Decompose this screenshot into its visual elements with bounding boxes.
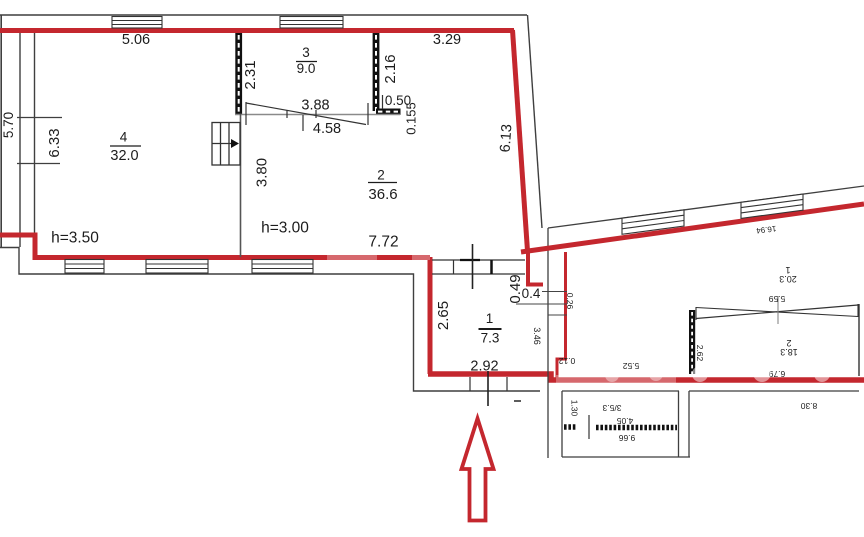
- svg-text:16.94: 16.94: [755, 224, 777, 235]
- svg-text:2: 2: [786, 338, 791, 348]
- svg-text:0.12: 0.12: [558, 356, 575, 366]
- svg-text:8.30: 8.30: [800, 401, 817, 411]
- svg-text:5.70: 5.70: [1, 112, 16, 138]
- svg-text:32.0: 32.0: [110, 148, 138, 164]
- svg-text:36.6: 36.6: [368, 186, 397, 203]
- svg-text:6.79: 6.79: [768, 369, 785, 379]
- svg-text:18.3: 18.3: [780, 347, 798, 357]
- svg-text:6.33: 6.33: [46, 128, 63, 157]
- svg-text:1: 1: [486, 311, 494, 326]
- svg-text:7.72: 7.72: [368, 234, 398, 251]
- svg-text:2.65: 2.65: [435, 301, 452, 330]
- svg-text:5.06: 5.06: [122, 32, 150, 48]
- svg-text:2.16: 2.16: [382, 54, 399, 83]
- svg-text:9.0: 9.0: [297, 61, 316, 76]
- svg-text:7.3: 7.3: [481, 331, 500, 346]
- svg-text:5.59: 5.59: [768, 294, 785, 304]
- svg-text:1.30: 1.30: [570, 400, 580, 417]
- svg-text:0.4: 0.4: [522, 286, 541, 301]
- svg-text:2.62: 2.62: [695, 345, 705, 362]
- svg-text:5.52: 5.52: [622, 361, 639, 371]
- svg-text:9.66: 9.66: [618, 433, 635, 443]
- svg-text:3.88: 3.88: [301, 98, 329, 114]
- svg-text:3/5.3: 3/5.3: [602, 403, 621, 413]
- svg-text:20.3: 20.3: [779, 274, 797, 284]
- svg-text:0.155: 0.155: [404, 102, 419, 135]
- svg-text:3: 3: [302, 45, 310, 60]
- svg-text:3.29: 3.29: [433, 32, 461, 48]
- svg-text:4.58: 4.58: [313, 121, 341, 137]
- svg-text:4: 4: [120, 130, 128, 145]
- svg-text:0.26: 0.26: [565, 293, 575, 310]
- svg-text:h=3.00: h=3.00: [261, 220, 309, 237]
- svg-text:3.80: 3.80: [254, 158, 271, 187]
- svg-text:2.92: 2.92: [470, 359, 498, 375]
- svg-text:4.05: 4.05: [616, 416, 633, 426]
- svg-text:2.31: 2.31: [242, 60, 259, 89]
- svg-text:3.46: 3.46: [532, 327, 542, 345]
- svg-text:h=3.50: h=3.50: [51, 230, 99, 247]
- svg-text:1: 1: [785, 265, 790, 275]
- svg-text:6.13: 6.13: [498, 124, 516, 153]
- svg-text:2: 2: [377, 168, 385, 183]
